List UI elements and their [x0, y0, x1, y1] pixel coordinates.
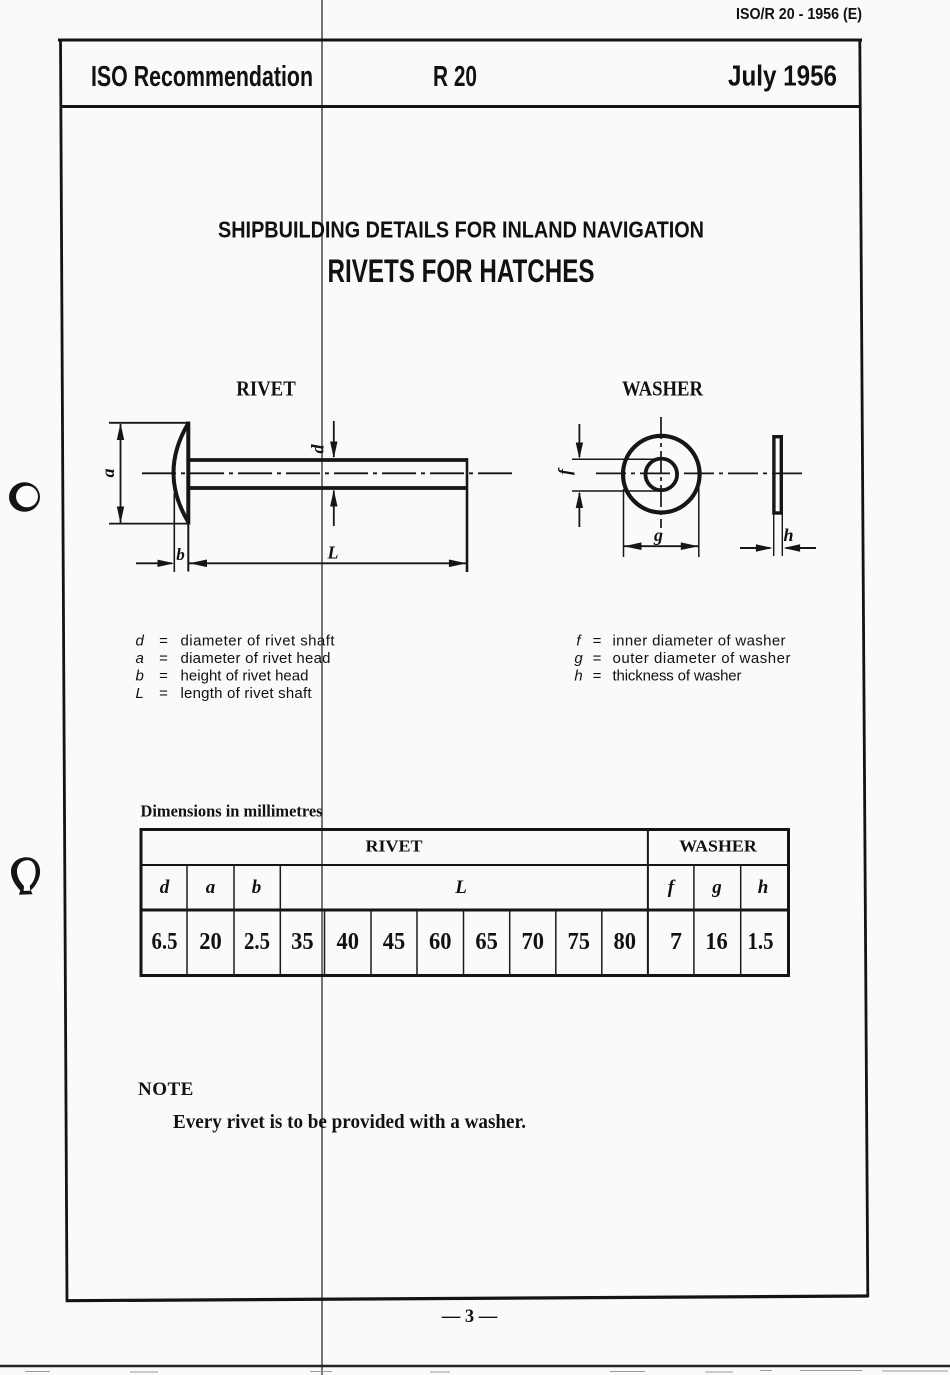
svg-text:b: b [176, 545, 185, 564]
svg-text:d: d [308, 444, 328, 454]
svg-text:inner diameter of washer: inner diameter of washer [613, 633, 786, 650]
svg-text:a: a [98, 469, 118, 478]
svg-text:g: g [711, 877, 722, 898]
svg-text:80: 80 [614, 929, 637, 955]
svg-text:16: 16 [705, 929, 728, 955]
svg-text:Dimensions in millimetres: Dimensions in millimetres [141, 802, 323, 821]
svg-text:=: = [593, 668, 602, 685]
svg-text:g: g [653, 525, 663, 545]
svg-text:20: 20 [199, 929, 222, 955]
svg-text:h: h [574, 668, 582, 685]
svg-text:70: 70 [521, 929, 544, 955]
svg-text:diameter of rivet head: diameter of rivet head [181, 650, 331, 667]
svg-text:40: 40 [336, 929, 359, 955]
svg-text:g: g [574, 650, 583, 667]
svg-text:6.5: 6.5 [152, 929, 178, 955]
svg-text:July 1956: July 1956 [728, 61, 837, 93]
svg-text:=: = [159, 668, 168, 685]
svg-text:a: a [136, 650, 144, 667]
svg-text:height of rivet head: height of rivet head [181, 668, 309, 685]
svg-text:65: 65 [475, 929, 498, 955]
svg-text:WASHER: WASHER [622, 377, 704, 401]
svg-text:diameter of rivet shaft: diameter of rivet shaft [181, 633, 336, 650]
svg-text:b: b [252, 877, 262, 898]
svg-text:=: = [593, 633, 602, 650]
svg-text:L: L [327, 543, 339, 563]
svg-text:length of rivet shaft: length of rivet shaft [181, 685, 313, 702]
svg-text:2.5: 2.5 [244, 929, 270, 955]
svg-text:thickness of washer: thickness of washer [613, 668, 742, 685]
svg-text:R 20: R 20 [433, 61, 477, 93]
svg-text:7: 7 [670, 929, 682, 955]
svg-text:=: = [159, 685, 168, 702]
svg-text:h: h [783, 525, 793, 545]
svg-text:WASHER: WASHER [679, 837, 757, 856]
svg-text:=: = [159, 650, 168, 667]
svg-text:b: b [136, 668, 144, 685]
svg-text:=: = [159, 633, 168, 650]
svg-text:75: 75 [568, 929, 591, 955]
svg-text:ISO/R 20 - 1956 (E): ISO/R 20 - 1956 (E) [736, 6, 862, 23]
svg-text:h: h [758, 877, 769, 898]
svg-text:RIVETS FOR HATCHES: RIVETS FOR HATCHES [328, 253, 595, 289]
svg-text:RIVET: RIVET [366, 837, 424, 856]
svg-text:— 3 —: — 3 — [441, 1307, 498, 1327]
svg-text:35: 35 [291, 929, 314, 955]
svg-text:RIVET: RIVET [236, 377, 296, 401]
svg-text:outer diameter of washer: outer diameter of washer [613, 650, 791, 667]
svg-text:=: = [593, 650, 602, 667]
svg-text:d: d [136, 633, 145, 650]
svg-text:ISO Recommendation: ISO Recommendation [91, 61, 313, 93]
svg-text:NOTE: NOTE [138, 1079, 194, 1100]
svg-text:L: L [136, 685, 144, 702]
svg-text:45: 45 [383, 929, 406, 955]
svg-text:L: L [454, 877, 467, 898]
svg-text:SHIPBUILDING DETAILS FOR INLAN: SHIPBUILDING DETAILS FOR INLAND NAVIGATI… [218, 217, 704, 243]
svg-text:1.5: 1.5 [748, 929, 774, 955]
svg-text:Every rivet is to be provided: Every rivet is to be provided with a was… [173, 1111, 526, 1133]
svg-text:d: d [160, 877, 170, 898]
svg-text:a: a [206, 877, 216, 898]
svg-text:60: 60 [429, 929, 452, 955]
